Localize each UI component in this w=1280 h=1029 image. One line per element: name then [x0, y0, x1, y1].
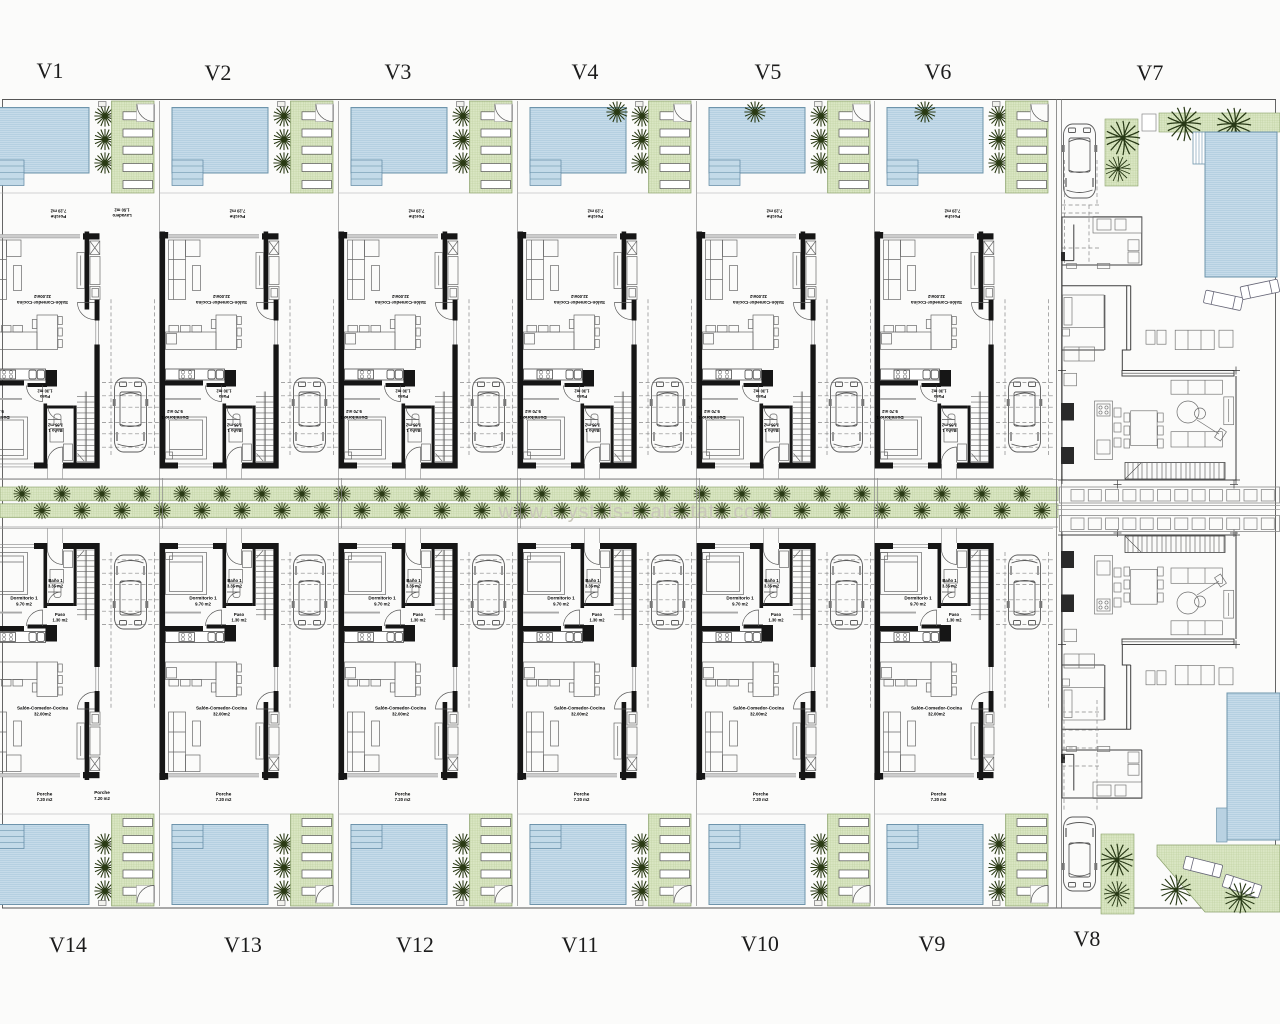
svg-text:V7: V7 — [1137, 60, 1164, 85]
svg-text:www.crystals-realestate.com: www.crystals-realestate.com — [498, 501, 774, 523]
svg-text:V14: V14 — [49, 932, 87, 957]
svg-text:V4: V4 — [572, 59, 599, 84]
svg-text:V8: V8 — [1074, 926, 1101, 951]
svg-text:V9: V9 — [919, 931, 946, 956]
svg-text:V10: V10 — [741, 931, 779, 956]
svg-text:Lavadero: Lavadero — [112, 213, 131, 218]
svg-text:V13: V13 — [224, 932, 262, 957]
svg-text:V5: V5 — [755, 59, 782, 84]
svg-text:V2: V2 — [205, 60, 232, 85]
svg-text:V11: V11 — [561, 932, 598, 957]
svg-text:V3: V3 — [385, 59, 412, 84]
svg-text:V12: V12 — [396, 932, 434, 957]
svg-text:Porche: Porche — [94, 790, 110, 795]
svg-text:1.50 m2: 1.50 m2 — [114, 208, 130, 213]
svg-text:7.20 m2: 7.20 m2 — [94, 796, 110, 801]
svg-text:V1: V1 — [37, 58, 64, 83]
svg-text:V6: V6 — [925, 59, 952, 84]
